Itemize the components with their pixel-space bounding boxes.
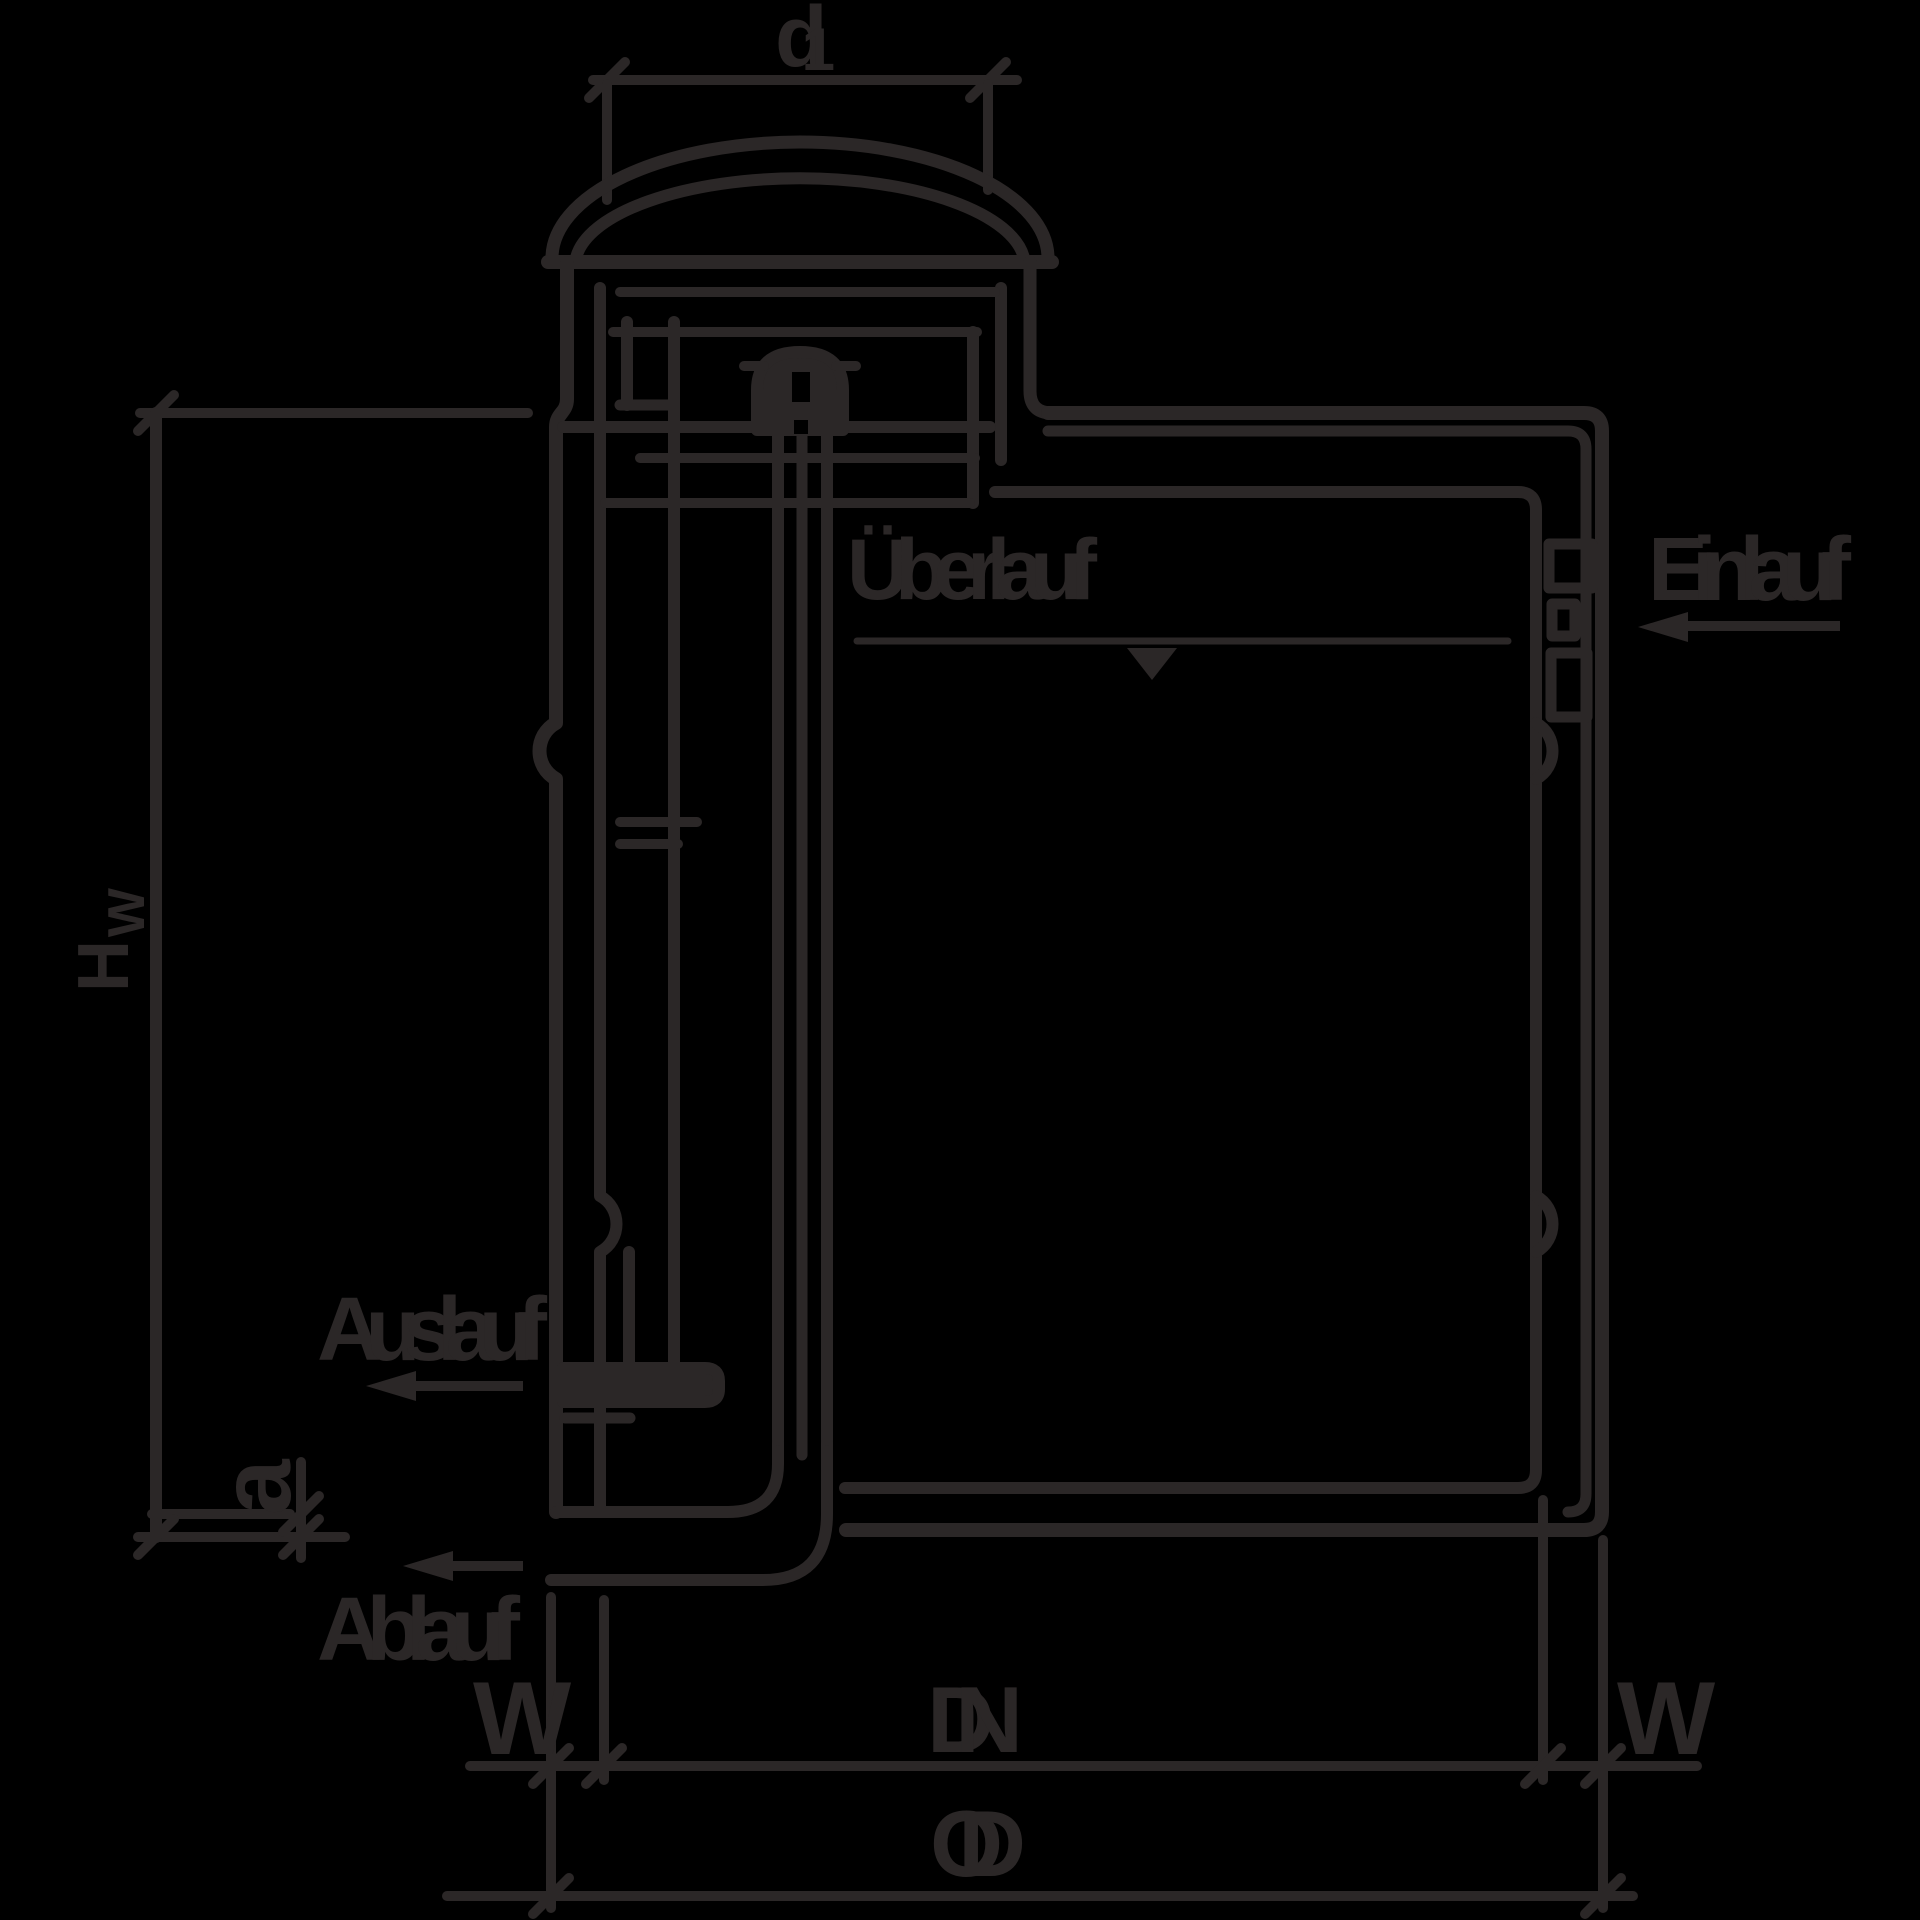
- svg-text:Einlauf: Einlauf: [1648, 520, 1852, 620]
- svg-text:d1: d1: [775, 0, 835, 85]
- svg-text:DN: DN: [927, 1667, 1023, 1772]
- svg-text:Überlauf: Überlauf: [847, 522, 1097, 618]
- svg-text:W: W: [473, 1661, 572, 1777]
- svg-text:Auslauf: Auslauf: [317, 1280, 548, 1380]
- svg-text:W: W: [1617, 1661, 1716, 1777]
- svg-text:OD: OD: [930, 1791, 1026, 1896]
- svg-text:a: a: [200, 1458, 312, 1515]
